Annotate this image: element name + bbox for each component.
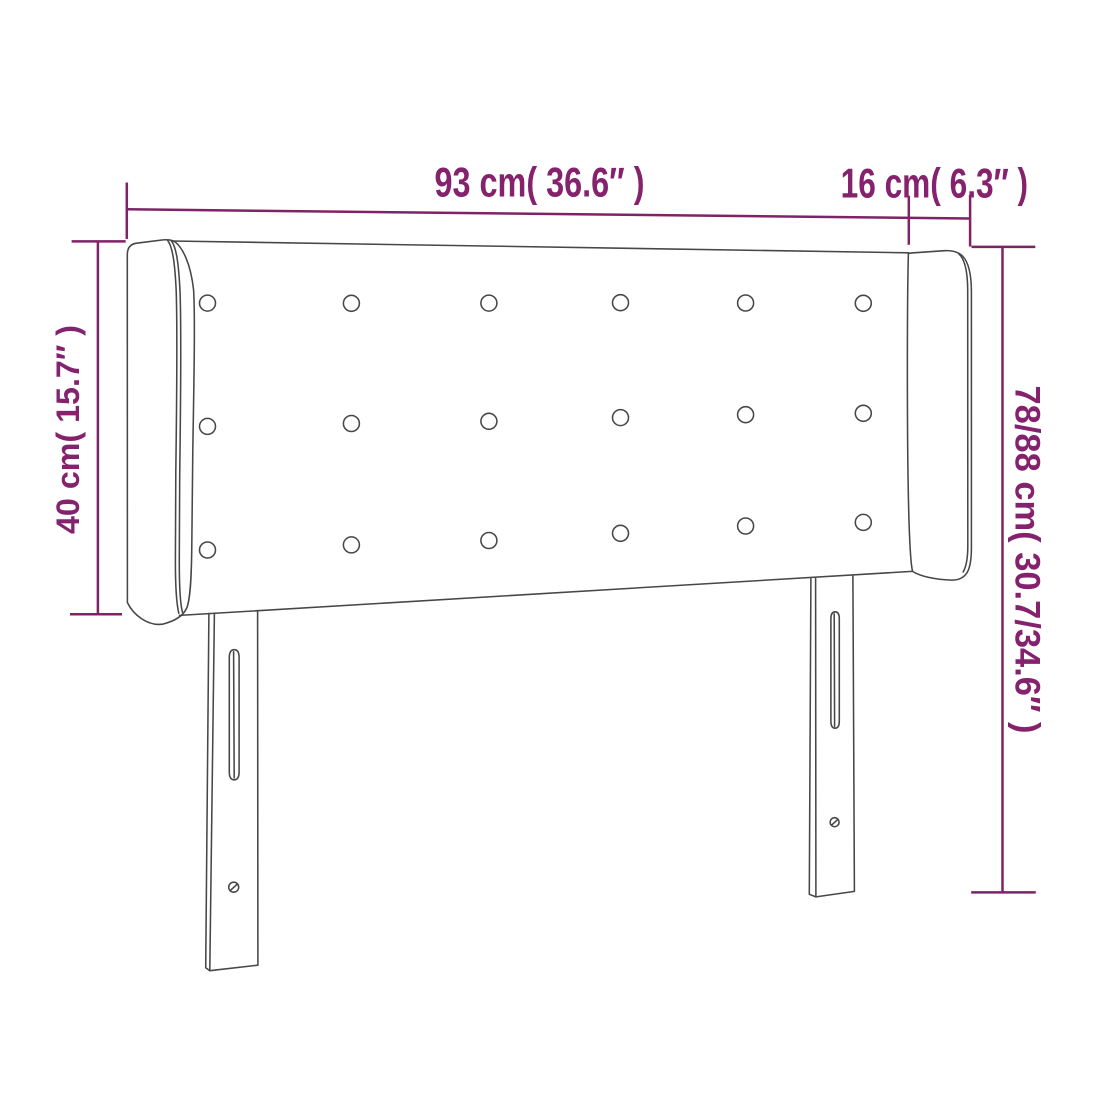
svg-text:93 cm( 36.6″ ): 93 cm( 36.6″ ) <box>435 159 645 206</box>
svg-text:16 cm( 6.3″ ): 16 cm( 6.3″ ) <box>841 159 1029 206</box>
svg-text:40 cm( 15.7″ ): 40 cm( 15.7″ ) <box>50 325 86 534</box>
svg-text:78/88 cm( 30.7/34.6″ ): 78/88 cm( 30.7/34.6″ ) <box>1008 386 1047 734</box>
